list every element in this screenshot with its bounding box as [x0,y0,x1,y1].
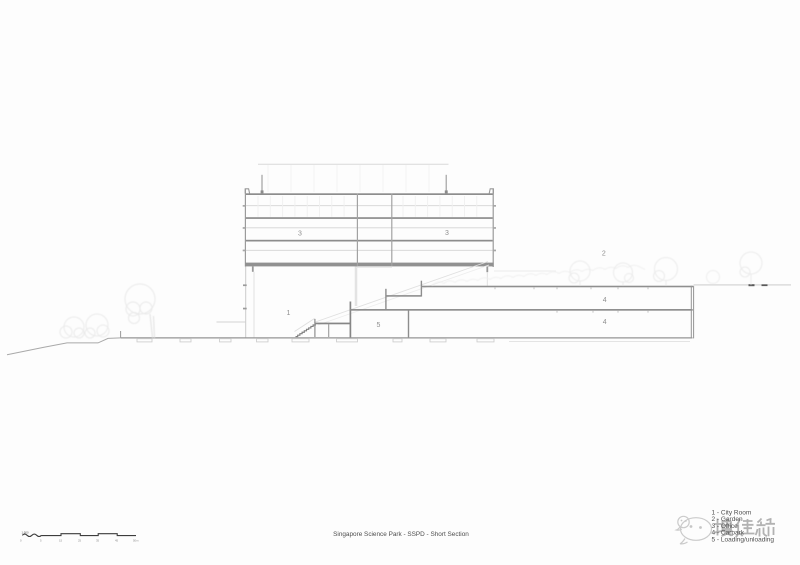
svg-text:35: 35 [96,539,100,543]
svg-text:1: 1 [287,310,291,317]
svg-text:Singapore Science Park - SSPD: Singapore Science Park - SSPD - Short Se… [333,531,469,538]
svg-text:50m: 50m [133,539,139,543]
svg-text:5 - Loading/unloading: 5 - Loading/unloading [712,537,775,544]
svg-text:4: 4 [603,297,607,304]
svg-text:5: 5 [377,322,381,329]
svg-text:3: 3 [445,230,449,237]
svg-text:2: 2 [602,251,606,258]
svg-text:15: 15 [59,539,63,543]
svg-text:45: 45 [115,539,119,543]
svg-text:25: 25 [78,539,82,543]
svg-text:1:500: 1:500 [22,531,29,535]
svg-text:3: 3 [298,231,302,238]
svg-text:4: 4 [603,319,607,326]
